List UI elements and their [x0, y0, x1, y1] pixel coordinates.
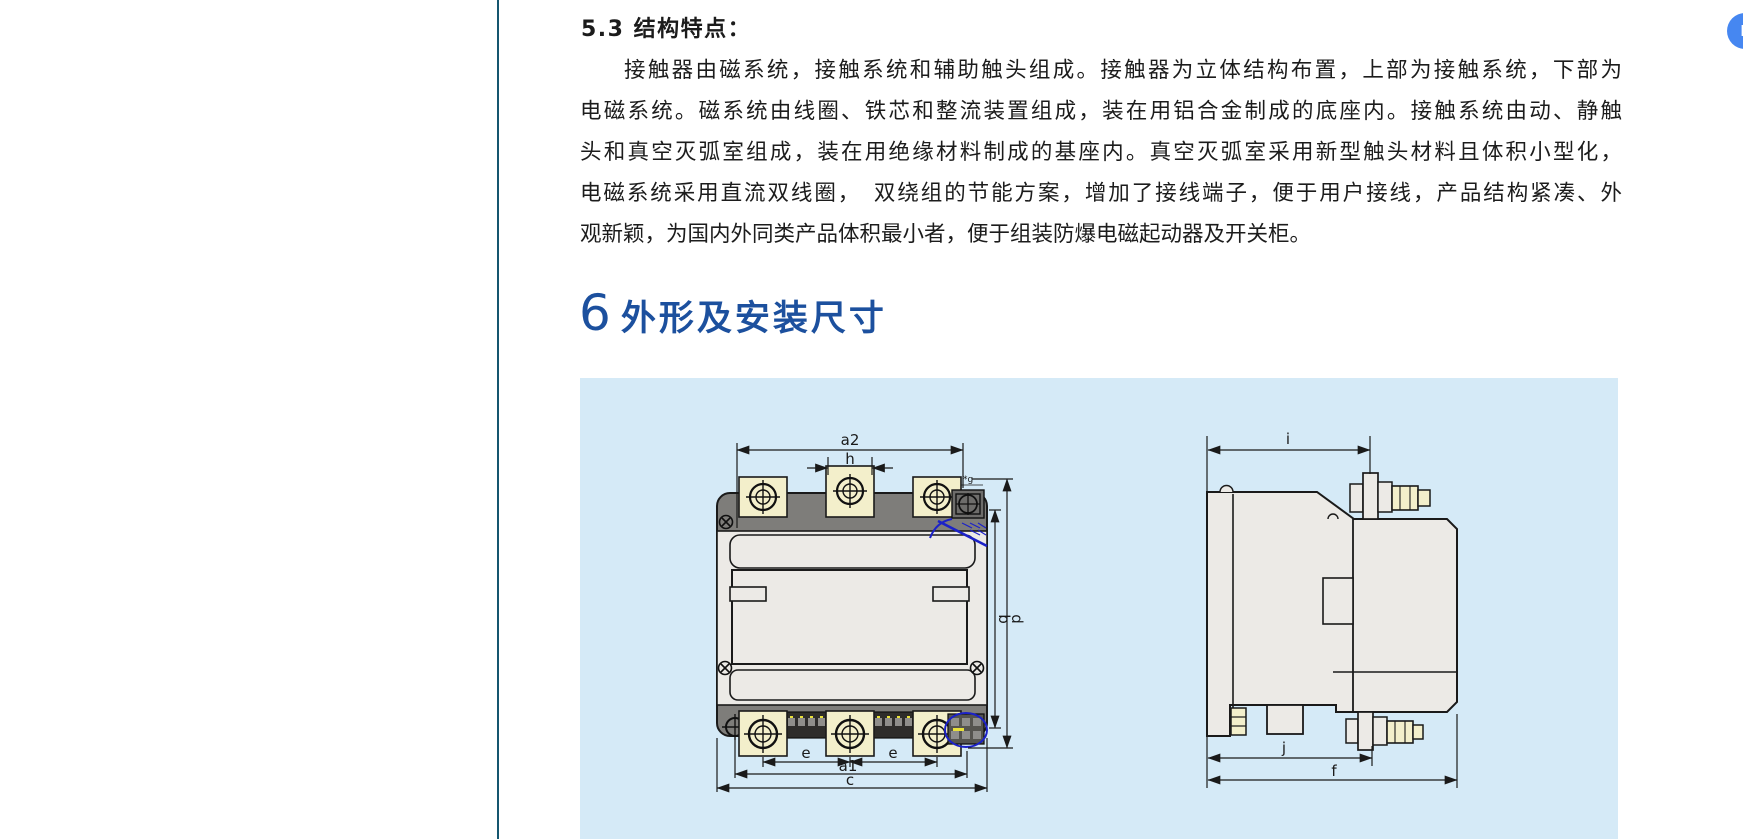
paragraph-line: 接触器由磁系统，接触系统和辅助触头组成。接触器为立体结构布置，上部为接触系统，下…	[580, 50, 1622, 91]
dim-label-a2: a2	[841, 431, 860, 449]
dim-label-h: h	[845, 450, 855, 468]
chapter-heading: 6 外形及安装尺寸	[579, 288, 887, 338]
dim-label-f: f	[1331, 762, 1337, 780]
dimension-figure-panel: a2 h *g b d e e a1 c	[580, 378, 1618, 839]
front-view-drawing: a2 h *g b d e e a1 c	[717, 431, 1026, 792]
chapter-title: 外形及安装尺寸	[621, 302, 887, 337]
dim-label-e1: e	[801, 744, 810, 762]
side-top-terminal	[1350, 473, 1430, 519]
paragraph-line: 电磁系统。磁系统由线圈、铁芯和整流装置组成，装在用铝合金制成的底座内。接触系统由…	[580, 91, 1622, 132]
chapter-number: 6	[579, 288, 611, 338]
paragraph-line: 头和真空灭弧室组成，装在用绝缘材料制成的基座内。真空灭弧室采用新型触头材料且体积…	[580, 132, 1622, 173]
section-heading: 5.3 结构特点：	[581, 11, 751, 43]
document-page: 5.3 结构特点： 接触器由磁系统，接触系统和辅助触头组成。接触器为立体结构布置…	[0, 0, 1743, 839]
bottom-terminal-pads	[722, 711, 961, 756]
dim-label-c: c	[846, 771, 854, 789]
side-bottom-terminal	[1346, 712, 1423, 750]
floating-action-button[interactable]: L	[1727, 13, 1743, 49]
paragraph-line: 电磁系统采用直流双线圈， 双绕组的节能方案，增加了接线端子，便于用户接线，产品结…	[580, 173, 1622, 214]
side-view-drawing: i j f	[1207, 430, 1457, 788]
dim-label-g: *g	[963, 475, 973, 485]
aux-contact-block-bottom	[945, 713, 987, 747]
page-divider-line	[497, 0, 499, 839]
top-terminal-pads	[739, 466, 961, 517]
body-paragraph: 接触器由磁系统，接触系统和辅助触头组成。接触器为立体结构布置，上部为接触系统，下…	[580, 50, 1622, 255]
dim-label-i: i	[1286, 430, 1290, 448]
dim-label-e2: e	[888, 744, 897, 762]
paragraph-line: 观新颖，为国内外同类产品体积最小者，便于组装防爆电磁起动器及开关柜。	[580, 214, 1622, 255]
dim-label-j: j	[1281, 739, 1286, 757]
dim-label-d: d	[1008, 614, 1026, 624]
outline-dimension-drawing: a2 h *g b d e e a1 c	[580, 378, 1618, 839]
